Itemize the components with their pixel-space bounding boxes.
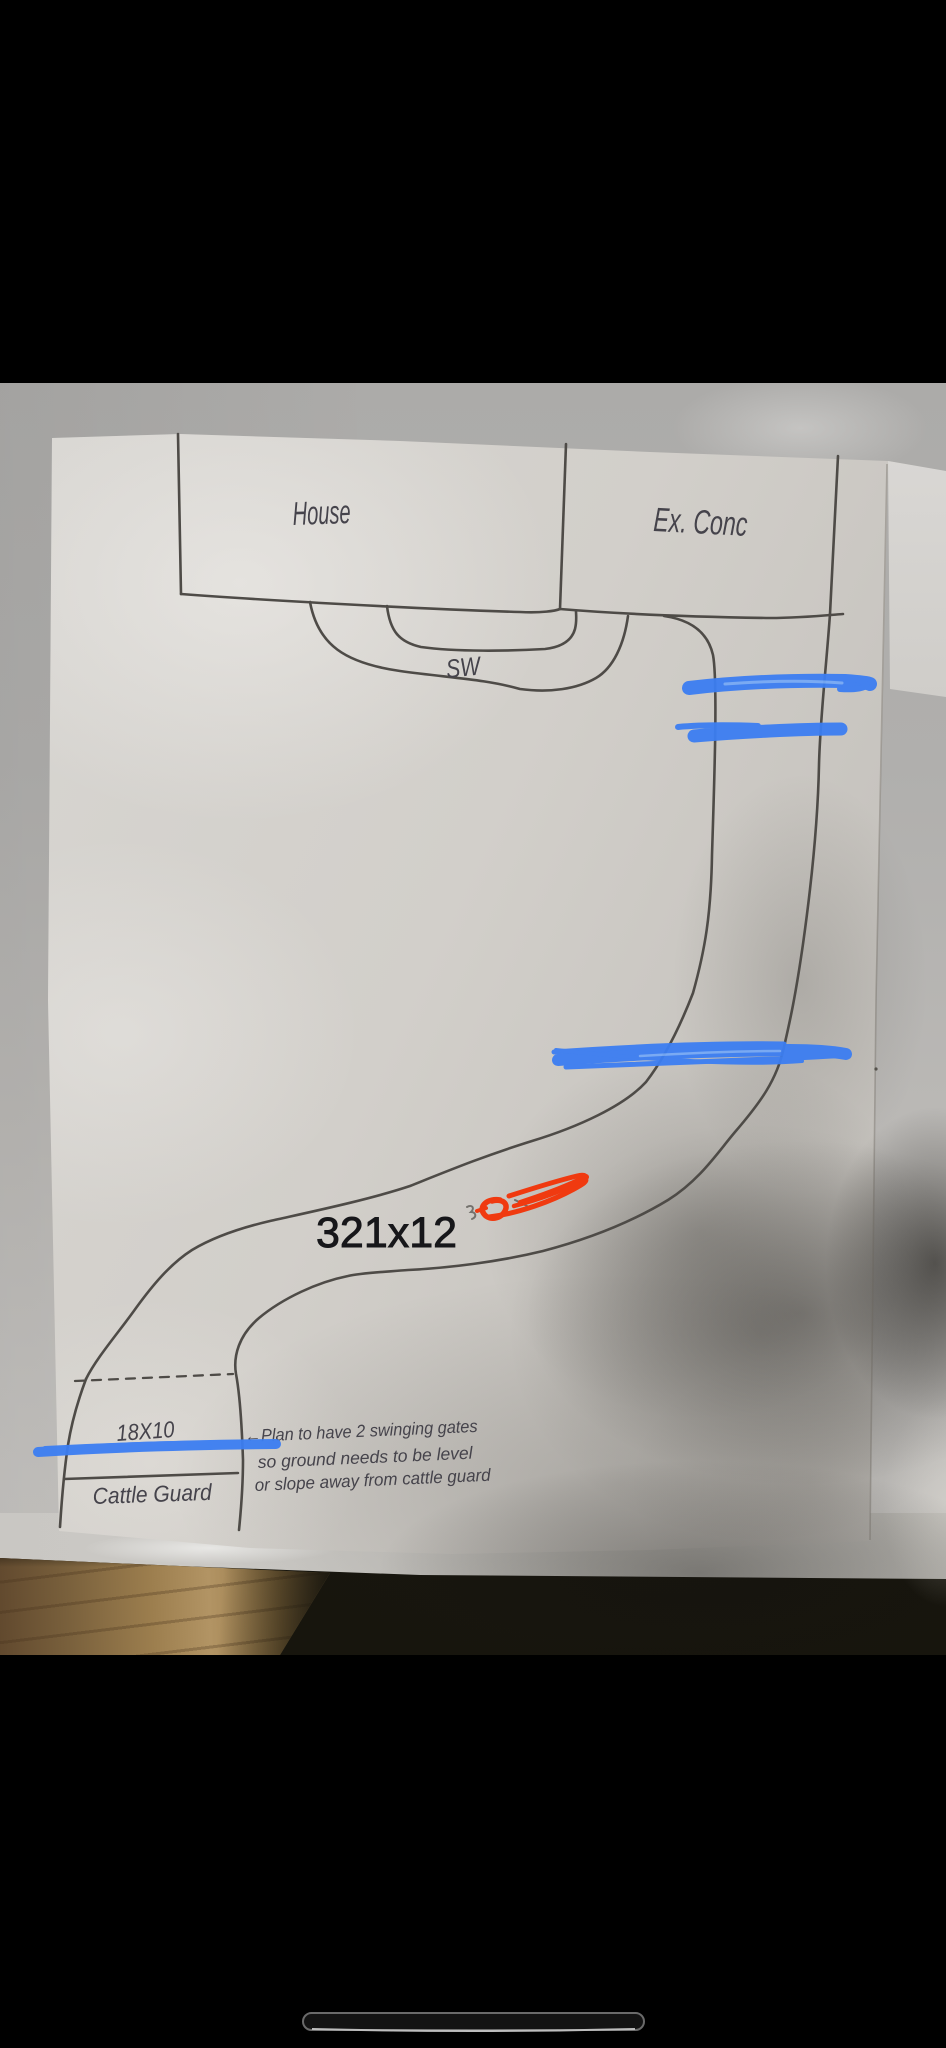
svg-text:House: House [292, 493, 351, 532]
svg-text:Cattle Guard: Cattle Guard [92, 1479, 213, 1509]
svg-text:Ex. Conc: Ex. Conc [653, 501, 749, 544]
svg-text:321x12: 321x12 [316, 1209, 457, 1257]
svg-text:SW: SW [444, 650, 483, 684]
